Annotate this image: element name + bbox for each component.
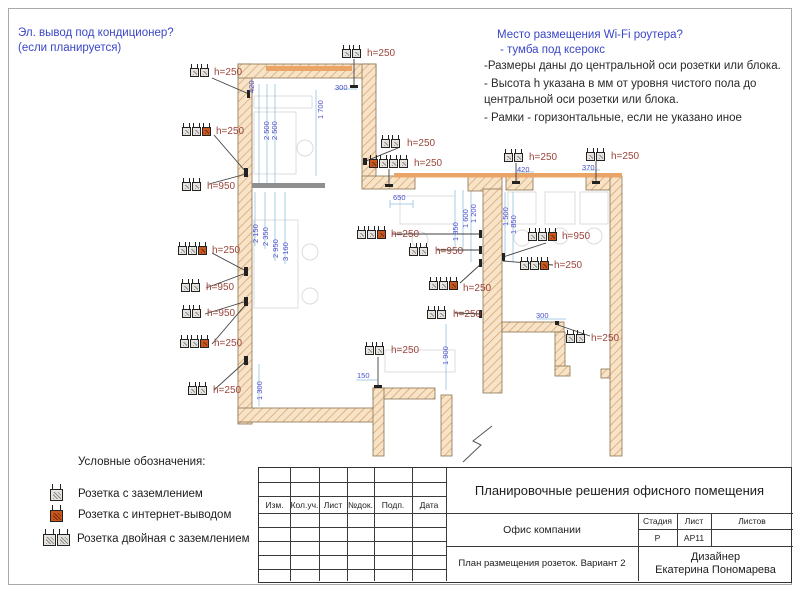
socket-symbol <box>178 242 207 255</box>
socket-symbol <box>182 178 201 191</box>
socket-symbol <box>180 335 209 348</box>
tb-col-izm: Изм. <box>259 496 290 513</box>
socket-module-icon <box>182 182 191 191</box>
socket-module-icon <box>427 310 436 319</box>
internet-module-icon <box>548 232 557 241</box>
socket-module-icon <box>504 153 513 162</box>
socket-module-icon <box>192 182 201 191</box>
tb-hline <box>259 555 446 556</box>
socket-module-icon <box>181 283 190 292</box>
wifi-note-line1: Место размещения Wi-Fi роутера? <box>497 28 683 43</box>
legend-item-label: Розетка с интернет-выводом <box>78 509 231 521</box>
socket-height-label: h=950 <box>207 181 235 192</box>
socket-module-icon <box>389 159 398 168</box>
legend-item-label: Розетка с заземлением <box>78 488 203 500</box>
socket-module-icon <box>391 139 400 148</box>
socket-symbol <box>586 148 605 161</box>
dimension-label: 420 <box>247 80 256 93</box>
dimension-label: 420 <box>517 165 530 174</box>
socket-module-icon <box>180 339 189 348</box>
socket-module-icon <box>188 386 197 395</box>
internet-module-icon <box>198 246 207 255</box>
socket-symbol <box>504 149 523 162</box>
socket-height-label: h=250 <box>463 283 491 294</box>
ac-note: Эл. вывод под кондиционер? (если планиру… <box>18 26 174 56</box>
socket-module-icon <box>365 346 374 355</box>
tb-col-podp: Подп. <box>374 496 412 513</box>
internet-module-icon <box>50 510 63 522</box>
dimension-label: 650 <box>393 193 406 202</box>
socket-module-icon <box>437 310 446 319</box>
dimension-label: 2 350 <box>261 227 270 246</box>
socket-module-icon <box>566 334 575 343</box>
socket-module-icon <box>192 127 201 136</box>
socket-module-icon <box>528 232 537 241</box>
socket-symbol <box>369 155 408 168</box>
socket-module-icon <box>191 283 200 292</box>
socket-module-icon <box>188 246 197 255</box>
socket-height-label: h=250 <box>554 260 582 271</box>
dimension-label: 2 150 <box>251 224 260 243</box>
socket-symbol <box>342 45 361 58</box>
tb-sheets-label: Листов <box>711 513 793 529</box>
dimension-lines <box>251 78 600 406</box>
tb-designer: Дизайнер Екатерина Пономарева <box>638 546 793 581</box>
socket-symbol <box>520 257 549 270</box>
socket-module-icon <box>419 247 428 256</box>
internet-module-icon <box>202 127 211 136</box>
socket-height-label: h=250 <box>212 245 240 256</box>
dimension-label: 370 <box>582 163 595 172</box>
socket-module-icon <box>381 139 390 148</box>
socket-symbol <box>381 135 400 148</box>
socket-symbol <box>188 382 207 395</box>
tb-designer-name: Екатерина Пономарева <box>655 564 776 577</box>
drawing-sheet: Эл. вывод под кондиционер? (если планиру… <box>0 0 800 591</box>
tb-drawing-name: План размещения розеток. Вариант 2 <box>446 546 638 581</box>
internet-module-icon <box>369 159 378 168</box>
socket-module-icon <box>538 232 547 241</box>
break-line <box>463 426 492 462</box>
socket-symbol <box>50 484 63 501</box>
tb-hline <box>259 527 446 528</box>
socket-module-icon <box>429 281 438 290</box>
socket-height-label: h=250 <box>453 309 481 320</box>
socket-module-icon <box>192 309 201 318</box>
socket-module-icon <box>530 261 539 270</box>
socket-module-icon <box>182 127 191 136</box>
title-block: Изм. Кол.уч. Лист №док. Подп. Дата Плани… <box>258 467 792 583</box>
dimension-label: 1 300 <box>255 381 264 400</box>
tb-designer-role: Дизайнер <box>691 551 740 564</box>
socket-symbol <box>566 330 585 343</box>
note-frames: - Рамки - горизонтальные, если не указан… <box>484 110 787 127</box>
tb-vline <box>290 468 291 581</box>
tb-vline <box>347 468 348 581</box>
socket-symbol <box>181 279 200 292</box>
internet-module-icon <box>540 261 549 270</box>
wifi-note-line2: - тумба под ксерокс <box>500 43 683 58</box>
socket-module-icon <box>379 159 388 168</box>
tb-vline <box>319 468 320 581</box>
tb-col-data: Дата <box>412 496 446 513</box>
tb-col-ndok: №док. <box>347 496 374 513</box>
tb-sheets-value <box>711 529 793 546</box>
socket-height-label: h=250 <box>591 333 619 344</box>
tb-sheet-label: Лист <box>677 513 711 529</box>
socket-symbol <box>365 342 384 355</box>
tb-hline <box>259 482 446 483</box>
dimension-label: 2 950 <box>271 239 280 258</box>
socket-symbol <box>357 226 386 239</box>
socket-height-label: h=950 <box>562 231 590 242</box>
tb-object-name: Офис компании <box>446 513 638 546</box>
socket-symbol <box>427 306 446 319</box>
socket-module-icon <box>357 230 366 239</box>
internet-module-icon <box>200 339 209 348</box>
legend-title: Условные обозначения: <box>78 456 205 468</box>
ac-note-line1: Эл. вывод под кондиционер? <box>18 26 174 41</box>
socket-symbol <box>43 529 70 546</box>
socket-module-icon <box>409 247 418 256</box>
socket-height-label: h=250 <box>216 126 244 137</box>
socket-module-icon <box>43 534 56 546</box>
tb-stage-label: Стадия <box>638 513 677 529</box>
socket-height-label: h=950 <box>207 308 235 319</box>
tb-col-list: Лист <box>319 496 347 513</box>
tb-vline <box>412 468 413 581</box>
ac-note-line2: (если планируется) <box>18 41 174 56</box>
tb-vline <box>374 468 375 581</box>
internet-module-icon <box>449 281 458 290</box>
socket-module-icon <box>352 49 361 58</box>
dimension-label: 2 500 <box>270 121 279 140</box>
socket-module-icon <box>178 246 187 255</box>
socket-symbol <box>409 243 428 256</box>
socket-symbol <box>429 277 458 290</box>
dimension-label: 1 850 <box>509 215 518 234</box>
socket-height-label: h=250 <box>367 48 395 59</box>
wifi-note: Место размещения Wi-Fi роутера? - тумба … <box>497 28 683 58</box>
dimension-label: 300 <box>536 311 549 320</box>
socket-module-icon <box>576 334 585 343</box>
tb-stage-value: Р <box>638 529 677 546</box>
socket-module-icon <box>190 68 199 77</box>
general-notes: -Размеры даны до центральной оси розетки… <box>484 58 787 127</box>
socket-height-label: h=950 <box>206 282 234 293</box>
socket-module-icon <box>200 68 209 77</box>
socket-module-icon <box>367 230 376 239</box>
socket-height-label: h=250 <box>414 158 442 169</box>
dimension-label: 3 160 <box>281 242 290 261</box>
socket-symbol <box>190 64 209 77</box>
socket-module-icon <box>50 489 63 501</box>
socket-height-label: h=250 <box>391 229 419 240</box>
dimension-label: 300 <box>335 83 348 92</box>
dimension-label: 1 700 <box>316 100 325 119</box>
note-height: - Высота h указана в мм от уровня чистог… <box>484 76 787 109</box>
socket-module-icon <box>342 49 351 58</box>
socket-height-label: h=250 <box>213 385 241 396</box>
tb-sheet-value: АР11 <box>677 529 711 546</box>
legend-item-label: Розетка двойная с заземлением <box>77 533 250 545</box>
socket-module-icon <box>596 152 605 161</box>
socket-symbol <box>182 305 201 318</box>
socket-module-icon <box>375 346 384 355</box>
socket-symbol <box>528 228 557 241</box>
socket-symbol <box>182 123 211 136</box>
tb-hline <box>259 513 446 514</box>
socket-symbol <box>50 505 63 522</box>
dimension-label: 1 900 <box>441 346 450 365</box>
socket-height-label: h=250 <box>214 338 242 349</box>
dimension-label: 1 200 <box>469 204 478 223</box>
socket-module-icon <box>514 153 523 162</box>
socket-module-icon <box>439 281 448 290</box>
tb-col-koluch: Кол.уч. <box>290 496 319 513</box>
socket-module-icon <box>586 152 595 161</box>
dimension-label: 150 <box>357 371 370 380</box>
socket-height-label: h=250 <box>214 67 242 78</box>
socket-module-icon <box>520 261 529 270</box>
socket-module-icon <box>198 386 207 395</box>
tb-hline <box>259 541 446 542</box>
socket-module-icon <box>399 159 408 168</box>
tb-hline <box>259 569 446 570</box>
counter <box>252 183 325 188</box>
socket-module-icon <box>182 309 191 318</box>
socket-height-label: h=250 <box>529 152 557 163</box>
dimension-label: 1 850 <box>451 222 460 241</box>
note-dimensions: -Размеры даны до центральной оси розетки… <box>484 58 787 75</box>
socket-height-label: h=250 <box>391 345 419 356</box>
socket-module-icon <box>57 534 70 546</box>
socket-height-label: h=950 <box>435 246 463 257</box>
socket-height-label: h=250 <box>611 151 639 162</box>
internet-module-icon <box>377 230 386 239</box>
socket-height-label: h=250 <box>407 138 435 149</box>
tb-project-title: Планировочные решения офисного помещения <box>446 468 793 513</box>
socket-module-icon <box>190 339 199 348</box>
